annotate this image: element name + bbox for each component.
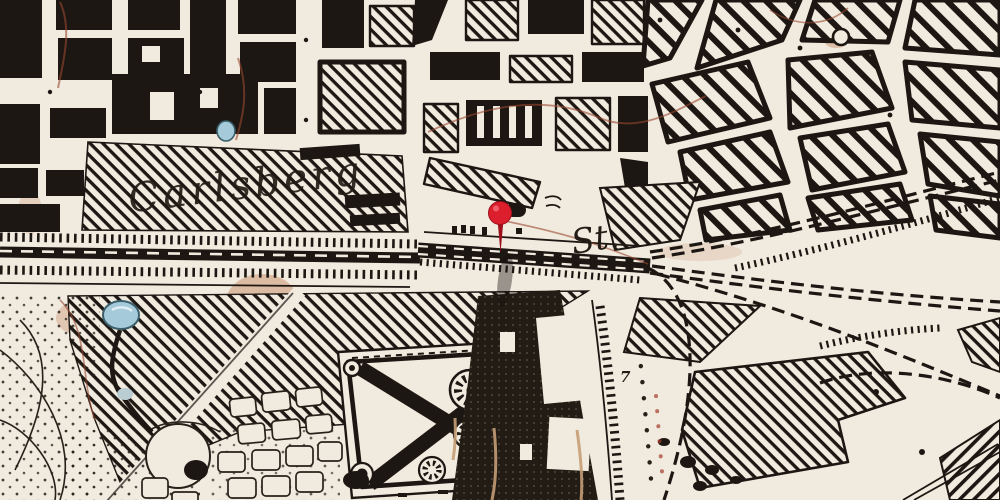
map-canvas[interactable]: Carlsberg [0,0,1000,500]
small-pond [117,388,133,400]
map-screenshot: Carlsberg [0,0,1000,500]
block-number-label: 7 [620,368,631,386]
roundabout-circle [833,29,849,45]
carlsberg-brewery-area: Carlsberg [82,142,408,232]
park-pond [103,301,139,329]
station-label: St. [568,216,621,263]
factory-pond [217,121,235,141]
pin-highlight [493,206,499,212]
pin-head [489,202,512,225]
